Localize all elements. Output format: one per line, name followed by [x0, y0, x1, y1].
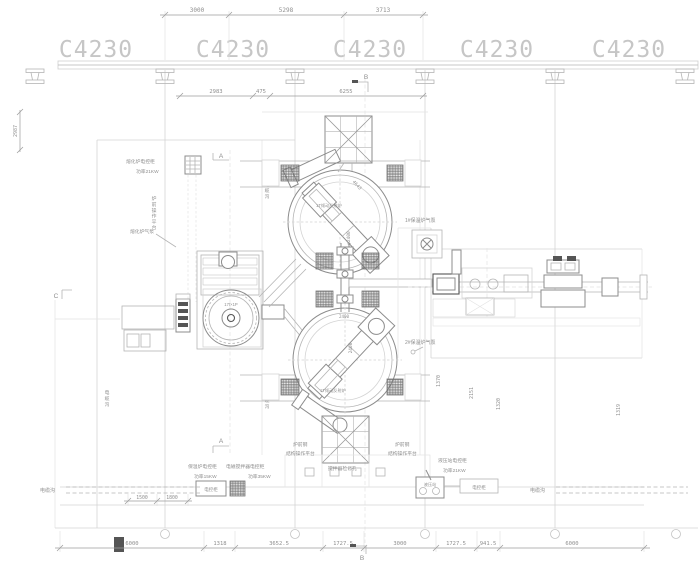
legend-block	[114, 537, 124, 552]
hold-cabinet-label: 保温炉电控柜	[188, 463, 217, 470]
dim-chain-bottom: 6000 1318 3652.5 1727.5 3000 1727.5 941.…	[55, 531, 650, 552]
svg-text:结构操作平台: 结构操作平台	[286, 450, 315, 457]
holding-cabinet-group: 保温炉电控柜 电磁搅拌器电控柜 功率15KW 功率35KW 电控柜	[188, 463, 271, 496]
hydraulic-station-group: 液压站电控柜 功率21KW 液压站 电控柜	[416, 457, 498, 498]
front-platform-label-1: 炉前钢 结构操作平台	[286, 441, 315, 457]
hyd-cabinet-label: 液压站电控柜	[438, 457, 467, 464]
stir-power-label: 功率35KW	[248, 473, 271, 480]
dim-value: 3713	[376, 7, 391, 14]
svg-text:B: B	[360, 555, 364, 562]
furnace2-dia: 2400	[348, 342, 354, 353]
bay-label: C4230	[460, 37, 534, 63]
svg-text:2#保温炉气泵: 2#保温炉气泵	[405, 339, 436, 346]
svg-text:炉前钢: 炉前钢	[293, 441, 308, 448]
svg-text:电缆沟: 电缆沟	[40, 487, 55, 494]
dim-value: 2983	[209, 89, 222, 95]
furnace1-dia: φ2400	[346, 231, 352, 245]
dim-value: 6255	[339, 89, 352, 95]
bay-label: C4230	[592, 37, 666, 63]
svg-text:3000: 3000	[393, 541, 406, 547]
furnace-1: 1T倾动反射炉 4643 φ2400	[240, 116, 430, 279]
section-marker-b-bottom: B	[350, 544, 366, 562]
cluster-dim: 2400	[339, 314, 350, 319]
svg-text:6000: 6000	[125, 541, 138, 547]
dim-chain-upper: 2983 475 6255	[176, 89, 427, 99]
section-marker-c: C	[54, 290, 72, 300]
svg-text:1319: 1319	[616, 404, 622, 416]
cabinet-box2-label: 电控柜	[472, 484, 486, 491]
dim-chain-small: 1500 1800	[124, 494, 192, 506]
hold-power-label: 功率15KW	[194, 473, 217, 480]
svg-text:炉前钢: 炉前钢	[395, 441, 410, 448]
right-vertical-dims: 1370 2151 1320 1319	[436, 375, 622, 416]
svg-text:941.5: 941.5	[480, 541, 497, 547]
blower-unit: 17t×1P	[197, 251, 302, 349]
section-marker-b-top: B	[352, 74, 368, 92]
blower-label: 17t×1P	[224, 302, 238, 307]
melt-furnace-pump-label: 熔化炉气泵	[130, 228, 176, 247]
stir-cabinet-label: 电磁搅拌器电控柜	[226, 463, 265, 470]
melt-cabinet-power: 功率21KW	[136, 168, 159, 175]
pump1-pad: 1#保温炉气泵	[405, 217, 442, 258]
furnace1-label: 1T倾动反射炉	[316, 202, 342, 209]
svg-text:1727.5: 1727.5	[333, 541, 353, 547]
dim-value: 2987	[13, 125, 19, 137]
dim-value: 475	[256, 89, 266, 95]
svg-text:C: C	[54, 293, 59, 300]
dim-left-vertical: 2987	[13, 109, 23, 153]
hyd-power-label: 功率21KW	[443, 467, 466, 474]
dim-value: 3000	[190, 7, 205, 14]
bay-label: C4230	[196, 37, 270, 63]
svg-text:1370: 1370	[436, 375, 442, 387]
bay-labels: C4230 C4230 C4230 C4230 C4230	[59, 37, 666, 63]
drawing-canvas: C4230 C4230 C4230 C4230 C4230 3000 5298 …	[0, 0, 700, 576]
bay-label: C4230	[59, 37, 133, 63]
svg-text:1727.5: 1727.5	[446, 541, 466, 547]
pump1-label: 1#保温炉气泵	[405, 217, 436, 224]
svg-text:1800: 1800	[166, 495, 178, 501]
hyd-station-label: 液压站	[424, 481, 437, 488]
svg-text:1500: 1500	[136, 495, 148, 501]
aux-unit-left	[122, 294, 190, 351]
svg-text:B: B	[364, 74, 368, 81]
front-platform-label-2: 炉前钢 结构操作平台	[388, 441, 417, 457]
svg-text:2151: 2151	[469, 387, 475, 399]
ibeam-columns	[26, 69, 694, 84]
svg-text:A: A	[219, 153, 224, 160]
platform-side-label: 炉前操作平台	[151, 195, 156, 231]
dim-value: 5298	[279, 7, 294, 14]
svg-text:6000: 6000	[565, 541, 578, 547]
section-marker-a-top: A	[213, 153, 229, 160]
section-marker-a-bottom: A	[213, 438, 229, 453]
furnace2-label: 1T倾动反射炉	[320, 387, 346, 394]
svg-text:结构操作平台: 结构操作平台	[388, 450, 417, 457]
cabinet-box-label: 电控柜	[204, 486, 218, 493]
cad-drawing-page: C4230 C4230 C4230 C4230 C4230 3000 5298 …	[0, 0, 700, 576]
svg-text:电缆沟: 电缆沟	[530, 487, 545, 494]
grid-bubbles	[161, 530, 681, 539]
svg-text:1320: 1320	[496, 398, 502, 410]
svg-text:1318: 1318	[213, 541, 226, 547]
svg-text:3652.5: 3652.5	[269, 541, 289, 547]
cable-trench-vertical-3: 电缆沟	[104, 389, 109, 408]
melt-furnace-cabinet: 熔化炉电控柜 功率21KW	[126, 156, 201, 302]
furnace-2: 1T倾动反射炉 2400	[240, 303, 430, 463]
cable-trench-left: 电缆沟	[40, 487, 200, 494]
melt-cabinet-label: 熔化炉电控柜	[126, 158, 155, 165]
stir-hole-label: 搅拌器检修孔	[328, 465, 357, 472]
cable-trench-right: 电缆沟	[530, 487, 688, 494]
svg-text:A: A	[219, 438, 224, 445]
